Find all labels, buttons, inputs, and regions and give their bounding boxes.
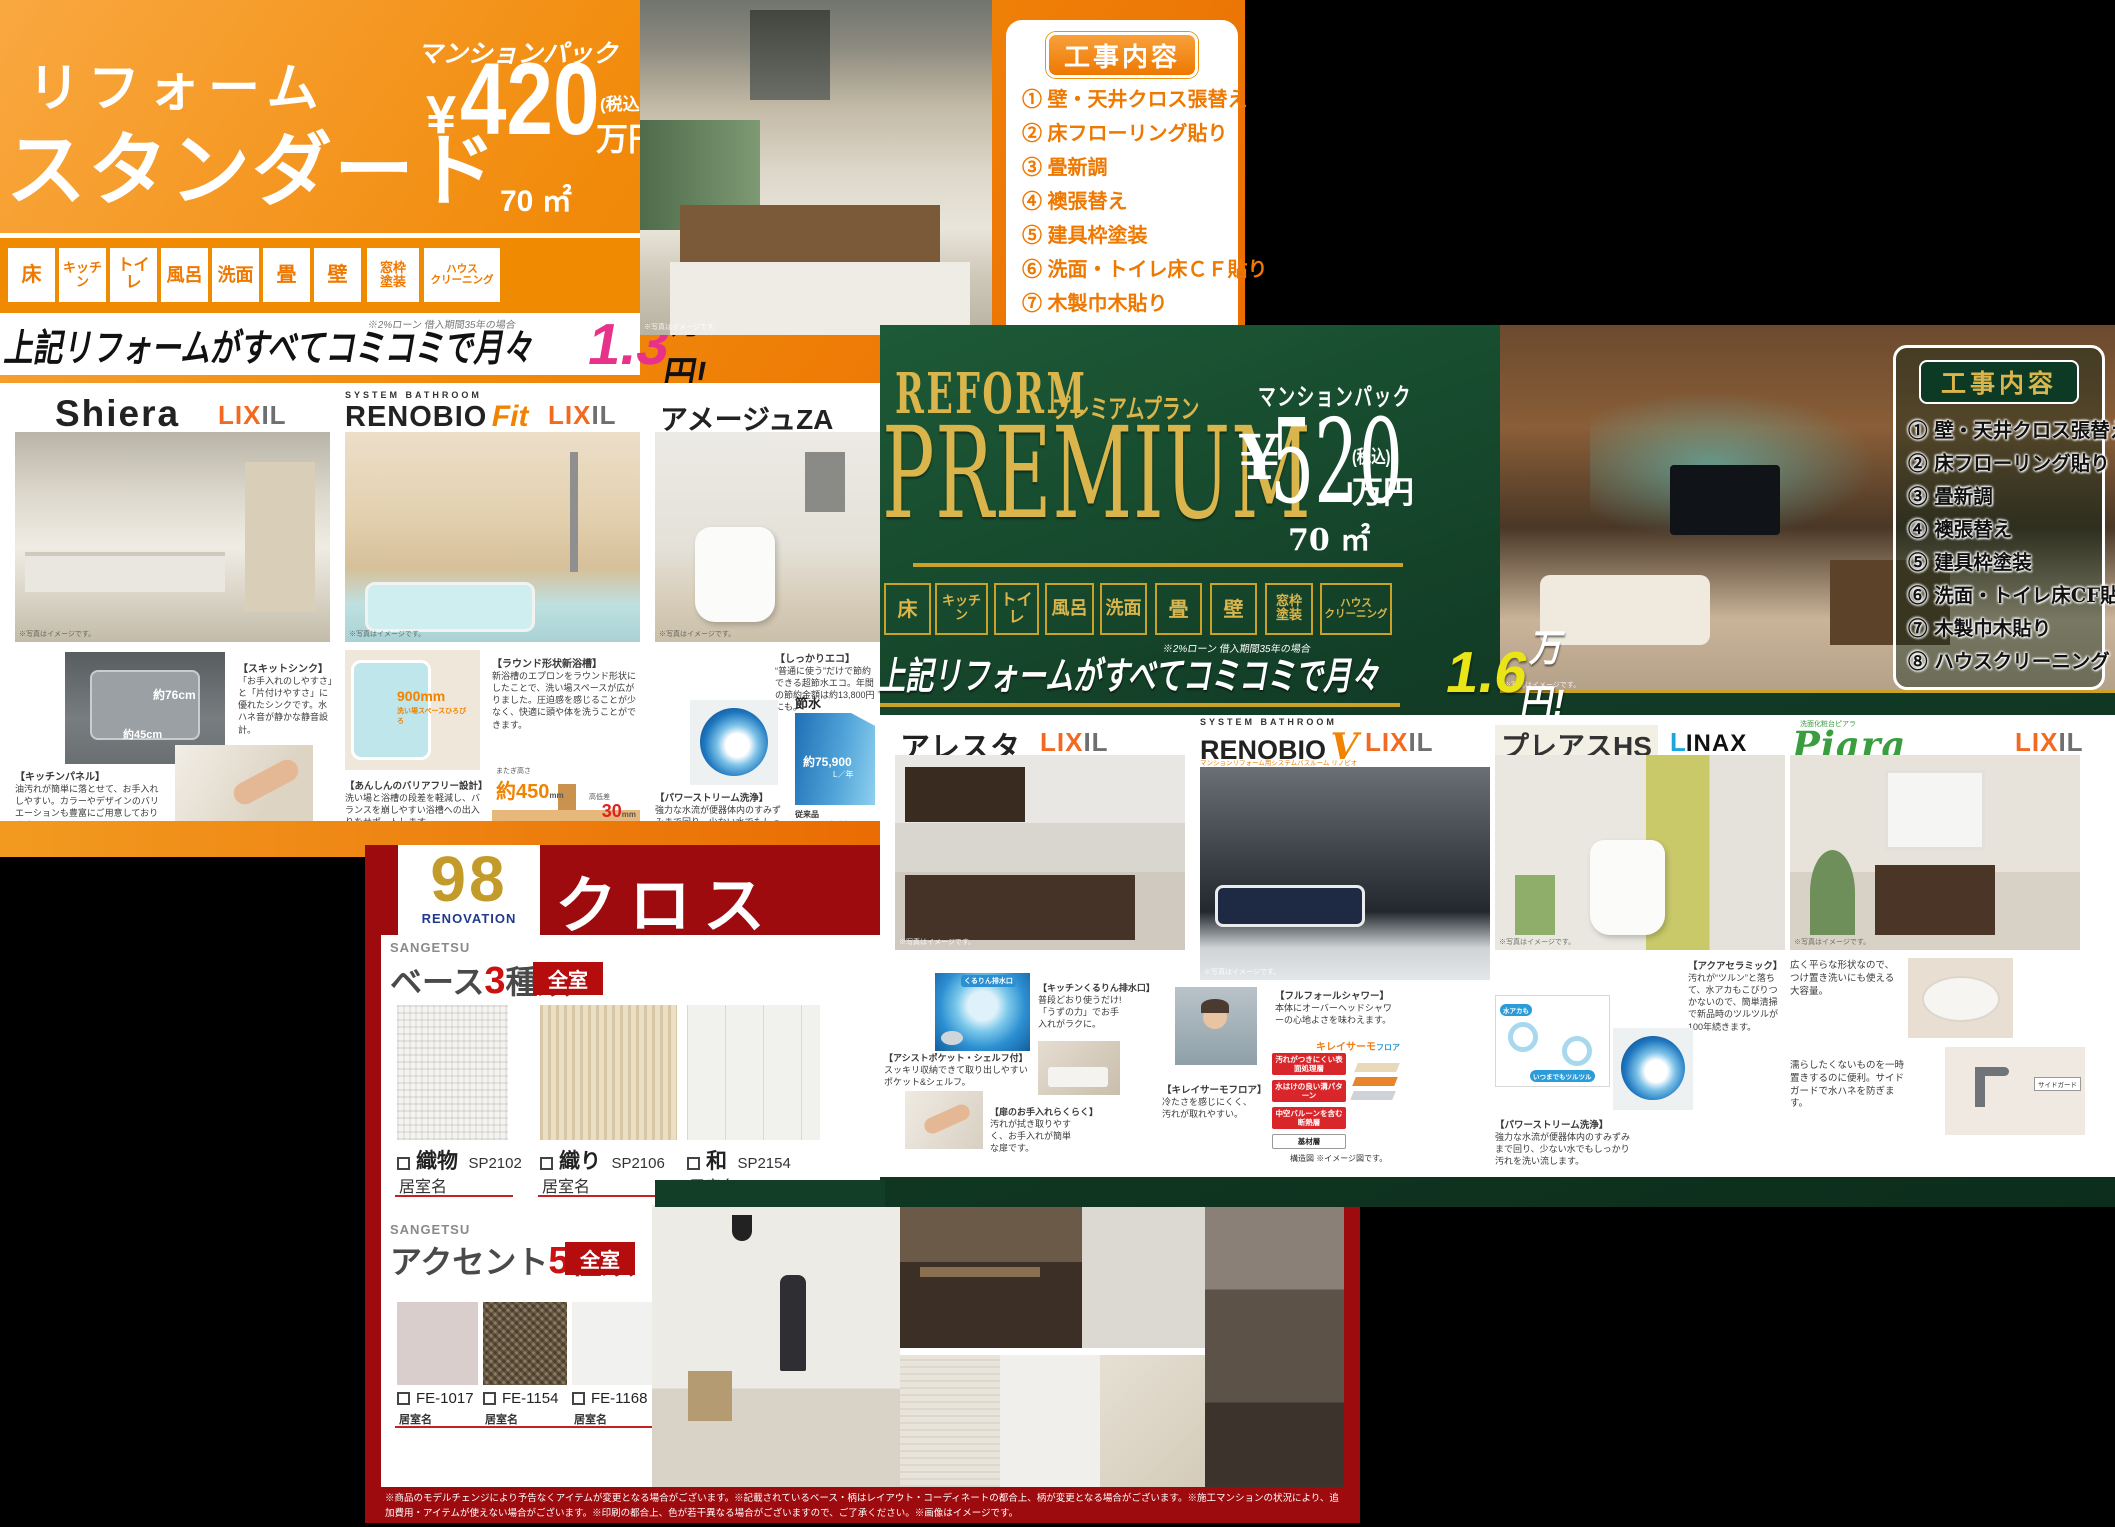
inax-logo-text: INAX [1686,730,1747,757]
sample-code: SP2106 [611,1155,664,1172]
renobio-kicker: SYSTEM BATHROOM [345,390,482,400]
premium-works-title: 工事内容 [1941,364,2057,400]
standard-tab-wall: 壁 [314,248,361,302]
cross-title: クロス [555,855,777,945]
lixil-logo: LIXIL [2015,727,2084,758]
lixil-logo-gray: IL [1408,727,1433,757]
lixil-logo: LIXIL [1365,727,1434,758]
caption-body: 汚れが拭き取りやすく、お手入れが簡単な扉です。 [990,1118,1072,1154]
allrooms-label: 全室 [548,964,588,993]
layer-label-base: 基材層 [1272,1134,1346,1149]
standard-area: 70 ㎡ [500,176,572,220]
panel-wipe-photo [175,745,313,821]
works-item: ⑦ 木製巾木貼り [1022,284,1268,318]
lixil-logo-orange: LIX [1365,727,1408,757]
shower-bar-shape [570,452,578,572]
renobiov-subtitle: マンションリフォーム用システムバスルーム リノビオ [1200,757,1357,767]
interior-photo-room [652,1205,900,1487]
accent-sample-3 [572,1302,655,1385]
caption-title: 【扉のお手入れらくらく】 [990,1105,1072,1118]
caption-aqua-ceramic: 【アクアセラミック】 汚れが“ツルン”と落ちて、水アカもこびりつかないので、簡単… [1688,958,1783,1033]
premium-tab-floor: 床 [884,583,931,635]
drawer-shape [1048,1067,1108,1087]
sink-depth-dim: 約45cm [123,726,162,742]
photo-note: ※写真はイメージです。 [899,937,975,947]
room-name-field[interactable]: 居室名 [399,1173,447,1197]
room-name-underline [395,1195,513,1197]
mirror-shape [1885,770,1985,850]
works-item: ⑥ 洗面・トイレ床ＣＦ貼り [1022,250,1268,284]
save-bar: 約75,900 L／年 [795,713,875,805]
standard-title-line2: スタンダード [6,106,498,222]
hand-shape [922,1102,972,1136]
amage-toilet-photo: ※写真はイメージです。 [655,432,880,642]
caption-title: 【パワーストリーム洗浄】 [1495,1117,1637,1131]
accent-label-2: FE-1154 [483,1390,558,1408]
sample-code: FE-1154 [502,1390,558,1407]
caption-kururin-drain: 【キッチンくるりん排水口】 普段どおり使うだけ!「うずの力」でお手入れがラクに。 [1038,981,1122,1030]
save-unit: L／年 [833,769,853,780]
lixil-logo: LIXIL [548,400,617,431]
renobio-fit-bath-photo: ※写真はイメージです。 [345,432,640,642]
standard-monthly-banner: ※2%ローン 借入期間35年の場合 上記リフォームがすべてコミコミで月々 1.3… [0,313,640,375]
checkbox[interactable] [540,1157,553,1170]
sample-code: FE-1168 [591,1390,647,1407]
step-value2: 30mm [602,801,636,822]
gold-divider-top [913,563,1403,567]
range-hood-shape [750,10,830,100]
premium-tab-vanity: 洗面 [1100,583,1147,635]
plant-shape [1810,850,1855,935]
premium-tax-note: (税込) [1352,443,1390,469]
texture-photo-1 [900,1355,1000,1487]
works-item: ⑦ 木製巾木貼り [1908,610,2102,643]
works-item: ① 壁・天井クロス張替え [1908,412,2102,445]
works-item: ① 壁・天井クロス張替え [1022,80,1268,114]
accent-sample-1 [397,1302,478,1385]
caption-body: 強力な水流が便器体内のすみずみまで回り、少ない水でもしっかり汚れを洗い流します。 [1495,1131,1637,1167]
product-name-renobio-fit: RENOBIO Fit [345,400,528,434]
layer-label: 水はけの良い溝パターン [1272,1080,1346,1102]
caption-body: 汚れが“ツルン”と落ちて、水アカもこびりつかないので、簡単清掃で新品時のツルツル… [1688,972,1783,1033]
stool-shape [688,1371,732,1421]
bath-dim-label: 900mm [397,688,445,704]
inax-logo-mark: L [1670,727,1686,757]
premium-works-panel: 工事内容 ① 壁・天井クロス張替え ② 床フローリング貼り ③ 畳新調 ④ 襖張… [1893,345,2105,690]
works-item: ⑤ 建具枠塗装 [1022,216,1268,250]
room-name-underline [395,1426,483,1428]
water-scale-ring [1508,1022,1538,1052]
lixil-logo-gray: IL [591,400,616,430]
caption-power-stream-premium: 【パワーストリーム洗浄】 強力な水流が便器体内のすみずみまで回り、少ない水でもし… [1495,1117,1637,1167]
caption-body: 冷たさを感じにくく、汚れが取れやすい。 [1162,1096,1257,1120]
base-title-num: 3 [484,960,505,1003]
photo-note: ※写真はイメージです。 [644,322,720,332]
step-v2: 30 [602,801,622,821]
save-value: 約75,900 [803,753,852,770]
premium-tab-toilet: トイレ [994,583,1039,635]
side-guard-label: サイドガード [2034,1077,2081,1091]
sample-name: 和 [706,1150,727,1173]
aqua-tag-2: いつまでもツルツル [1530,1070,1595,1082]
checkbox[interactable] [687,1157,700,1170]
maker-label: SANGETSU [390,940,470,955]
hair-shape [1201,999,1229,1013]
badge-sub: RENOVATION [398,911,540,926]
room-name-underline [481,1426,572,1428]
caption-body: 「お手入れのしやすさ」と「片付けやすさ」に優れたシンクです。水ハネ音が静かな静音… [238,675,333,736]
room-name-field[interactable]: 居室名 [574,1411,607,1427]
caption-title: 【キッチンパネル】 [15,768,167,783]
maker-label: SANGETSU [390,1222,470,1237]
works-item: ⑧ ハウスクリーニング [1908,643,2102,676]
base-sample-label-2: 織り SP2106 [540,1145,665,1175]
bath-topview-photo: 900mm 洗い場スペースひろびろ [345,650,480,770]
room-name-field[interactable]: 居室名 [399,1411,432,1427]
caption-title: 【キッチンくるりん排水口】 [1038,981,1122,994]
standard-works-panel: 工事内容 ① 壁・天井クロス張替え ② 床フローリング貼り ③ 畳新調 ④ 襖張… [1006,20,1238,350]
sample-code: FE-1017 [416,1390,474,1407]
works-item: ③ 畳新調 [1022,148,1268,182]
water-saving-chart: 節水 約75,900 L／年 従来品 (1989~2001年発売品) 【大13L… [795,693,880,835]
drain-swirl-photo: くるりん排水口 [935,973,1030,1051]
lixil-logo-gray: IL [1083,727,1108,757]
interior-photo-right [1205,1205,1344,1487]
bathtub-shape [365,582,535,632]
smooth-ring [1562,1036,1592,1066]
caption-body: 広く平らな形状なので、つけ置き洗いにも使える大容量。 [1790,960,1902,998]
premium-banner-row: 上記リフォームがすべてコミコミで月々 1.6 万円! [880,643,1440,701]
premium-works-title-pill: 工事内容 [1919,360,2079,404]
premium-tab-kitchen: キッチン [935,583,988,635]
drawer-photo [1038,1041,1120,1095]
sample-name: 織り [559,1150,601,1173]
room-name-field[interactable]: 居室名 [485,1411,518,1427]
caption-title: 【スキットシンク】 [238,660,333,675]
caption-title: 【キレイサーモフロア】 [1162,1082,1257,1096]
person-silhouette [780,1275,806,1371]
faucet-spout-shape [1975,1067,2009,1076]
bowl-shape [1922,976,2000,1022]
sample-name: 織物 [416,1150,458,1173]
kirei-thermo-diagram: キレイサーモフロア 汚れがつきにくい表面処理層 水はけの良い溝パターン 中空バル… [1272,1037,1400,1167]
kitchen-cabinet-shape [245,462,315,612]
fine-print: ※商品のモデルチェンジにより予告なくアイテムが変更となる場合がございます。※記載… [385,1492,1340,1521]
gold-photo-edge-line [1500,690,2115,693]
floor-layer-base [1350,1091,1396,1100]
aqua-ceramic-diagram: 水アカも いつまでもツルツル [1495,995,1610,1087]
base-sample-label-3: 和 SP2154 [687,1145,791,1175]
photo-note: ※写真はイメージです。 [1499,937,1575,947]
caption-title: 【フルフォールシャワー】 [1275,988,1393,1002]
piara-vanity-photo: ※写真はイメージです。 [1790,755,2080,950]
works-item: ⑤ 建具枠塗装 [1908,544,2102,577]
counter-shape [680,205,940,265]
layer-labels: 汚れがつきにくい表面処理層 水はけの良い溝パターン 中空バルーンを含む断熱層 基… [1272,1053,1346,1154]
sample-code: SP2102 [468,1155,521,1172]
checkbox[interactable] [397,1392,410,1405]
floor-layer-top [1354,1063,1400,1072]
standard-works-title-pill: 工事内容 [1046,32,1198,78]
diagram-note: 構造図 ※イメージ図です。 [1290,1153,1387,1164]
desk-top-shape [920,1267,1040,1277]
step-value1: 約450mm [496,775,564,804]
caption-body: 本体にオーバーヘッドシャワーの心地よさを味わえます。 [1275,1002,1393,1026]
base-sample-label-1: 織物 SP2102 [397,1145,522,1175]
standard-tab-window-paint: 窓枠 塗装 [367,248,419,302]
standard-tab-bath: 風呂 [161,248,208,302]
caption-full-fall-shower: 【フルフォールシャワー】 本体にオーバーヘッドシャワーの心地よさを味わえます。 [1275,988,1393,1026]
door-wipe-photo [905,1091,983,1149]
logo-orange: キレイサーモ [1316,1042,1376,1053]
accent-allrooms-badge: 全室 [565,1242,635,1275]
layer-label: 中空バルーンを含む断熱層 [1272,1107,1346,1129]
caption-body: 濡らしたくないものを一時置きするのに便利。サイドガードで水ハネを防ぎます。 [1790,1060,1905,1111]
lixil-logo-orange: LIX [548,400,591,430]
standard-category-band: 床 キッチン トイレ 風呂 洗面 畳 壁 窓枠 塗装 ハウス クリーニング [0,233,640,313]
lixil-logo-orange: LIX [1040,727,1083,757]
lixil-logo-gray: IL [261,400,286,430]
step-height-diagram: またぎ高さ 約450mm 高低差 30mm [492,762,640,824]
photo-note: ※写真はイメージです。 [349,629,425,639]
checkbox[interactable] [483,1392,496,1405]
caption-title: 【あんしんのバリアフリー設計】 [345,778,485,792]
lixil-logo-gray: IL [2058,727,2083,757]
badge-number: 98 [398,847,540,911]
caption-round-bathtub: 【ラウンド形状新浴槽】 新浴槽のエプロンをラウンド形状にしたことで、洗い場スペー… [492,655,640,731]
gold-divider-bottom [880,703,1400,707]
tv-shape [1670,465,1780,535]
step-v1: 約450 [496,781,549,803]
bath-dim-sub: 洗い場スペースひろびろ [397,706,467,726]
interior-photo-desk [900,1205,1082,1348]
premium-area: 70 ㎡ [1288,515,1370,559]
standard-yen-sign: ¥ [426,84,456,146]
shiera-kitchen-photo: ※写真はイメージです。 [15,432,330,642]
vanity-cabinet-shape [1875,865,1995,935]
premium-banner-amount: 1.6 [1441,639,1533,706]
texture-photo-3 [1100,1355,1205,1487]
premium-category-band: 床 キッチン トイレ 風呂 洗面 畳 壁 窓枠 塗装 ハウス クリーニング [880,583,1400,635]
floor-layer-mid [1352,1077,1398,1086]
texture-photo-2 [1000,1355,1100,1487]
works-item: ④ 襖張替え [1022,182,1268,216]
premium-bottom-band-extension [655,1180,885,1207]
premium-tab-bath: 風呂 [1045,583,1094,635]
alesta-kitchen-photo: ※写真はイメージです。 [895,755,1185,950]
toilet-bowl-photo [1613,1028,1693,1110]
standard-tab-kitchen: キッチン [59,248,106,302]
inax-logo: LINAX [1670,727,1747,758]
premium-flyer: REFORM プレミアムプラン PREMIUM マンションパック ¥ 520 (… [880,325,2115,1207]
lower-cabinet-shape [905,875,1135,940]
navy-tub-shape [1215,885,1365,927]
wallpaper-sample-wa [687,1005,820,1140]
toilet-bowl-photo [690,700,778,785]
basket-shape [941,1031,963,1045]
caption-door-care: 【扉のお手入れらくらく】 汚れが拭き取りやすく、お手入れが簡単な扉です。 [990,1105,1072,1154]
standard-price: 420 [460,48,600,150]
photo-note: ※写真はイメージです。 [19,629,95,639]
upper-cabinet-shape [905,767,1025,822]
aqua-tag-1: 水アカも [1500,1004,1532,1016]
caption-body: 新浴槽のエプロンをラウンド形状にしたことで、洗い場スペースが広がりました。圧迫感… [492,670,640,731]
bowl-hands-photo [1908,958,2013,1038]
caption-skit-sink: 【スキットシンク】 「お手入れのしやすさ」と「片付けやすさ」に優れたシンクです。… [238,660,333,736]
standard-banner-text: 上記リフォームがすべてコミコミで月々 [1,317,540,372]
standard-works-list: ① 壁・天井クロス張替え ② 床フローリング貼り ③ 畳新調 ④ 襖張替え ⑤ … [1022,80,1268,352]
caption-large-bowl: 広く平らな形状なので、つけ置き洗いにも使える大容量。 [1790,960,1902,998]
standard-tab-tatami: 畳 [263,248,310,302]
standard-kitchen-hero-photo: ※写真はイメージです。 [640,0,992,335]
swirl-shape [700,708,768,776]
works-item: ⑥ 洗面・トイレ床CF貼り [1908,577,2102,610]
renobio-accent: Fit [492,400,529,433]
premium-banner-text: 上記リフォームがすべてコミコミで月々 [875,645,1387,700]
preas-toilet-photo: ※写真はイメージです。 [1495,755,1785,950]
caption-title: 【アシストポケット・シェルフ付】 [884,1051,1029,1064]
interior-photo-wall [1082,1205,1205,1348]
caption-title: 【ラウンド形状新浴槽】 [492,655,640,670]
standard-tab-toilet: トイレ [110,248,157,302]
drain-label: くるりん排水口 [961,975,1016,987]
caption-body: スッキリ収納できて取り出しやすいポケット&シェルフ。 [884,1064,1029,1088]
base-title-pre: ベース [390,957,484,1003]
premium-tab-wall: 壁 [1210,583,1257,635]
accent-title-pre: アクセント [390,1237,548,1283]
save-label: 節水 [795,693,880,712]
lixil-logo: LIXIL [1040,727,1109,758]
checkbox[interactable] [572,1392,585,1405]
standard-works-title: 工事内容 [1064,37,1180,74]
premium-tab-house-cleaning: ハウス クリーニング [1320,583,1392,635]
caption-title: 【アクアセラミック】 [1688,958,1783,972]
photo-note: ※写真はイメージです。 [1794,937,1870,947]
toilet-shape [695,527,775,622]
works-item: ④ 襖張替え [1908,511,2102,544]
photo-note: ※写真はイメージです。 [659,629,735,639]
accent-label-1: FE-1017 [397,1390,474,1408]
pendant-lamp-shape [732,1215,752,1241]
kitchen-counter-shape [25,552,225,592]
renobiov-bath-photo: ※写真はイメージです。 [1200,767,1490,980]
standard-tab-vanity: 洗面 [212,248,259,302]
swirl-shape [1621,1036,1685,1100]
standard-tab-floor: 床 [8,248,55,302]
premium-price-unit: 万円 [1352,467,1414,512]
caption-title: 【しっかりエコ】 [775,650,877,665]
accent-label-3: FE-1168 [572,1390,647,1408]
photo-note: ※写真はイメージです。 [1204,967,1280,977]
sample-code: SP2154 [737,1155,790,1172]
shower-photo [1175,987,1257,1065]
step-u1: mm [549,791,563,800]
hand-shape [230,756,302,808]
step-u2: mm [622,810,636,819]
caption-assist-pocket: 【アシストポケット・シェルフ付】 スッキリ収納できて取り出しやすいポケット&シェ… [884,1051,1029,1088]
page-canvas: リフォーム スタンダード マンションパック ¥ 420 (税込) 万円 70 ㎡… [0,0,2115,1527]
standard-tab-house-cleaning: ハウス クリーニング [424,248,500,302]
works-item: ② 床フローリング貼り [1908,445,2102,478]
standard-banner-row: 上記リフォームがすべてコミコミで月々 1.3 万円! [6,313,638,375]
standard-tax-note: (税込) [600,90,645,115]
wallpaper-sample-ori [540,1005,677,1140]
room-name-field[interactable]: 居室名 [542,1173,590,1197]
caption-side-guard: 濡らしたくないものを一時置きするのに便利。サイドガードで水ハネを防ぎます。 [1790,1060,1905,1111]
caption-body: 普段どおり使うだけ!「うずの力」でお手入れがラクに。 [1038,994,1122,1030]
lixil-logo: LIXIL [218,400,287,431]
premium-works-list: ① 壁・天井クロス張替え ② 床フローリング貼り ③ 畳新調 ④ 襖張替え ⑤ … [1896,404,2102,676]
checkbox[interactable] [397,1157,410,1170]
plant-shape [1515,875,1555,935]
base-allrooms-badge: 全室 [533,962,603,995]
caption-title: 【パワーストリーム洗浄】 [655,790,787,804]
lixil-logo-orange: LIX [2015,727,2058,757]
layer-label: 汚れがつきにくい表面処理層 [1272,1053,1346,1075]
accent-sample-2 [483,1302,567,1385]
room-name-underline [570,1426,660,1428]
premium-tab-window-paint: 窓枠 塗装 [1265,583,1313,635]
works-item: ② 床フローリング貼り [1022,114,1268,148]
wallpaper-sample-orimono [397,1005,508,1140]
premium-tab-tatami: 畳 [1155,583,1202,635]
shelf-shape [805,452,845,512]
toilet-shape [1590,840,1665,935]
caption-kirei-thermo: 【キレイサーモフロア】 冷たさを感じにくく、汚れが取れやすい。 [1162,1082,1257,1120]
allrooms-label: 全室 [580,1244,620,1273]
lixil-logo-orange: LIX [218,400,261,430]
works-item: ③ 畳新調 [1908,478,2102,511]
product-name-shiera: Shiera [55,393,180,435]
faucet-photo: サイドガード [1945,1047,2085,1135]
renobio-name: RENOBIO [345,401,487,433]
logo-blue: フロア [1376,1043,1400,1052]
sink-width-dim: 約76cm [153,686,196,703]
